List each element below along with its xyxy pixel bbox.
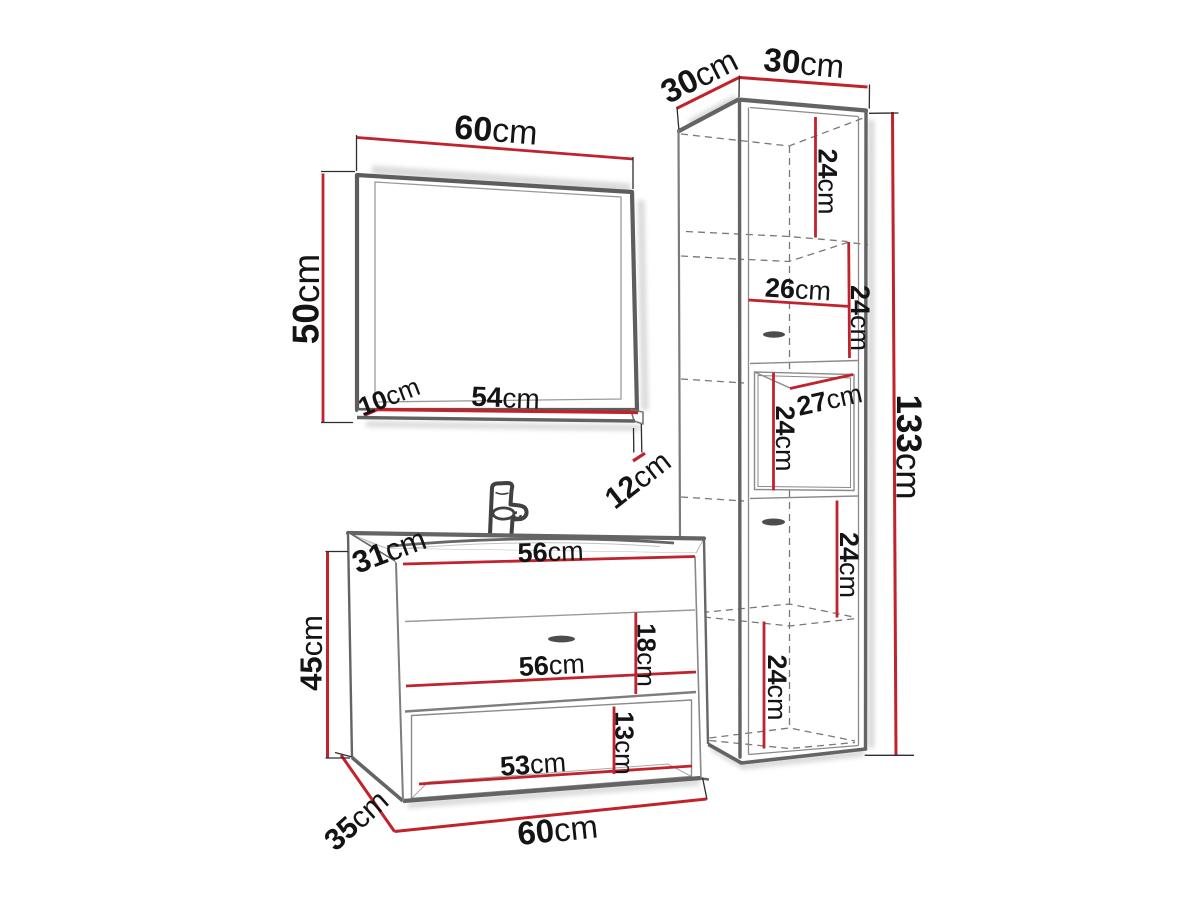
svg-text:13cm: 13cm	[610, 711, 640, 775]
svg-text:50cm: 50cm	[286, 254, 327, 344]
svg-text:24cm: 24cm	[813, 148, 843, 214]
svg-text:30cm: 30cm	[762, 41, 846, 85]
svg-text:24cm: 24cm	[845, 285, 875, 351]
svg-text:60cm: 60cm	[453, 108, 539, 152]
svg-text:24cm: 24cm	[834, 532, 864, 598]
svg-text:24cm: 24cm	[770, 405, 800, 471]
svg-text:26cm: 26cm	[764, 273, 832, 307]
svg-text:45cm: 45cm	[294, 615, 329, 691]
svg-text:18cm: 18cm	[632, 623, 662, 687]
svg-text:56cm: 56cm	[517, 536, 584, 568]
svg-text:54cm: 54cm	[471, 381, 541, 414]
svg-text:133cm: 133cm	[889, 394, 928, 499]
svg-text:53cm: 53cm	[499, 747, 567, 782]
svg-text:24cm: 24cm	[762, 654, 792, 720]
svg-text:56cm: 56cm	[518, 649, 586, 682]
